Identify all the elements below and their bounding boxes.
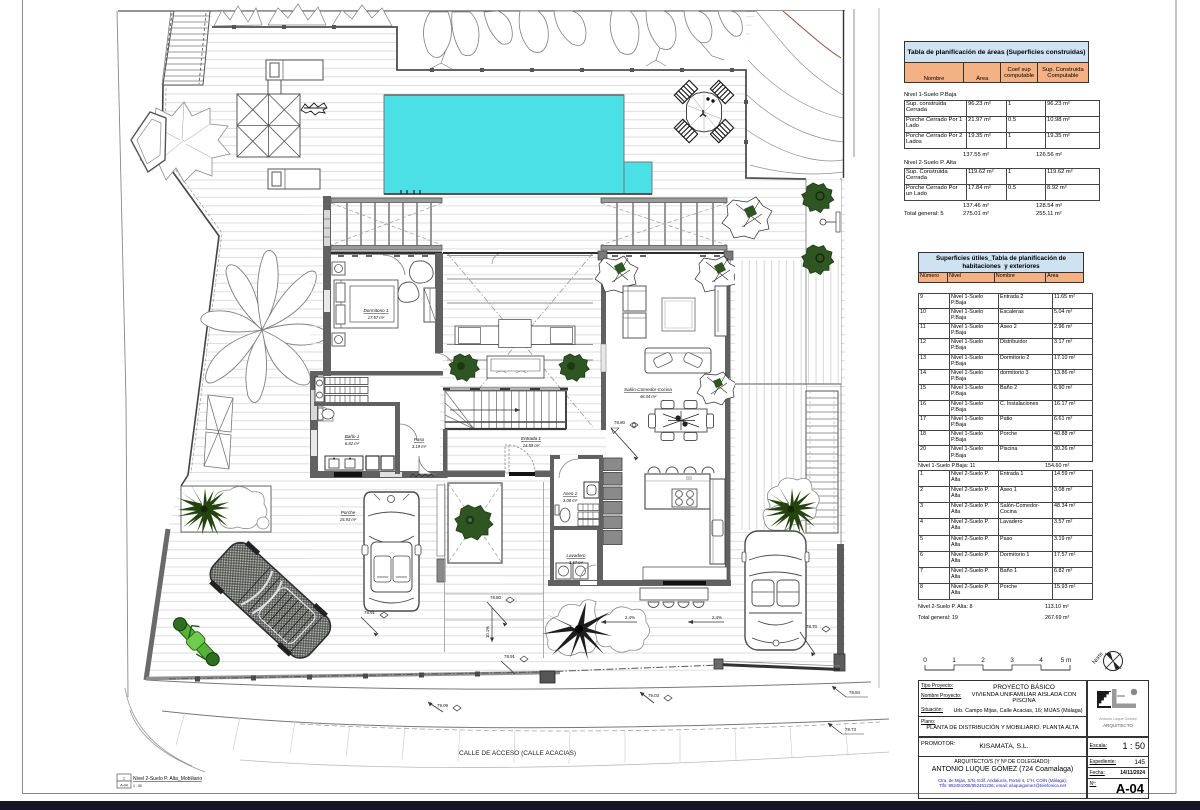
svg-text:CALLE DE ACCESO (CALLE ACACIAS: CALLE DE ACCESO (CALLE ACACIAS)	[459, 750, 576, 757]
svg-text:78.80: 78.80	[614, 420, 626, 425]
svg-text:48.34 m²: 48.34 m²	[640, 394, 657, 399]
svg-text:1: 1	[952, 657, 956, 664]
svg-text:6.82 m²: 6.82 m²	[345, 441, 360, 446]
svg-text:Salón-Comedor-Cocina: Salón-Comedor-Cocina	[624, 387, 672, 392]
svg-text:3.08 m²: 3.08 m²	[563, 498, 578, 503]
svg-text:Nivel 2-Suelo P. Alta_Mobiliar: Nivel 2-Suelo P. Alta_Mobiliario	[133, 776, 202, 782]
svg-text:78.84: 78.84	[849, 690, 861, 695]
svg-text:79.03: 79.03	[648, 693, 660, 698]
svg-text:Aseo 1: Aseo 1	[562, 491, 578, 496]
svg-text:2.4%: 2.4%	[625, 615, 635, 620]
svg-text:Porche: Porche	[341, 510, 356, 515]
svg-text:79.09: 79.09	[437, 703, 449, 708]
svg-text:Baño 1: Baño 1	[345, 434, 360, 439]
svg-text:17.57 m²: 17.57 m²	[368, 315, 385, 320]
svg-text:Paso: Paso	[414, 437, 425, 442]
svg-text:Lavadero: Lavadero	[566, 553, 586, 558]
svg-text:78.73: 78.73	[845, 727, 857, 732]
svg-text:2.4%: 2.4%	[712, 615, 722, 620]
svg-text:15.93 m²: 15.93 m²	[340, 517, 357, 522]
svg-text:78.70: 78.70	[806, 624, 818, 629]
svg-text:4: 4	[1039, 657, 1043, 664]
svg-text:78.91: 78.91	[364, 610, 376, 615]
svg-text:2: 2	[981, 657, 985, 664]
svg-text:3: 3	[1010, 657, 1014, 664]
svg-text:Norte: Norte	[1092, 651, 1105, 665]
svg-text:5 m: 5 m	[1061, 657, 1072, 664]
svg-text:Dormitorio 1: Dormitorio 1	[363, 308, 388, 313]
svg-text:0: 0	[923, 657, 927, 664]
svg-text:A-04: A-04	[120, 784, 128, 788]
svg-text:3.57 m²: 3.57 m²	[569, 560, 584, 565]
svg-text:78.91: 78.91	[504, 654, 516, 659]
svg-text:ARQUITECTO: ARQUITECTO	[1102, 723, 1132, 728]
svg-text:Entrada 1: Entrada 1	[521, 436, 541, 441]
svg-text:1 : 50: 1 : 50	[133, 784, 142, 788]
svg-text:10.1%: 10.1%	[485, 626, 490, 638]
svg-text:3.19 m²: 3.19 m²	[412, 444, 427, 449]
svg-text:78.80: 78.80	[490, 595, 502, 600]
svg-text:Antonio Luque Gómez: Antonio Luque Gómez	[1099, 717, 1137, 721]
svg-text:14.59 m²: 14.59 m²	[523, 443, 540, 448]
